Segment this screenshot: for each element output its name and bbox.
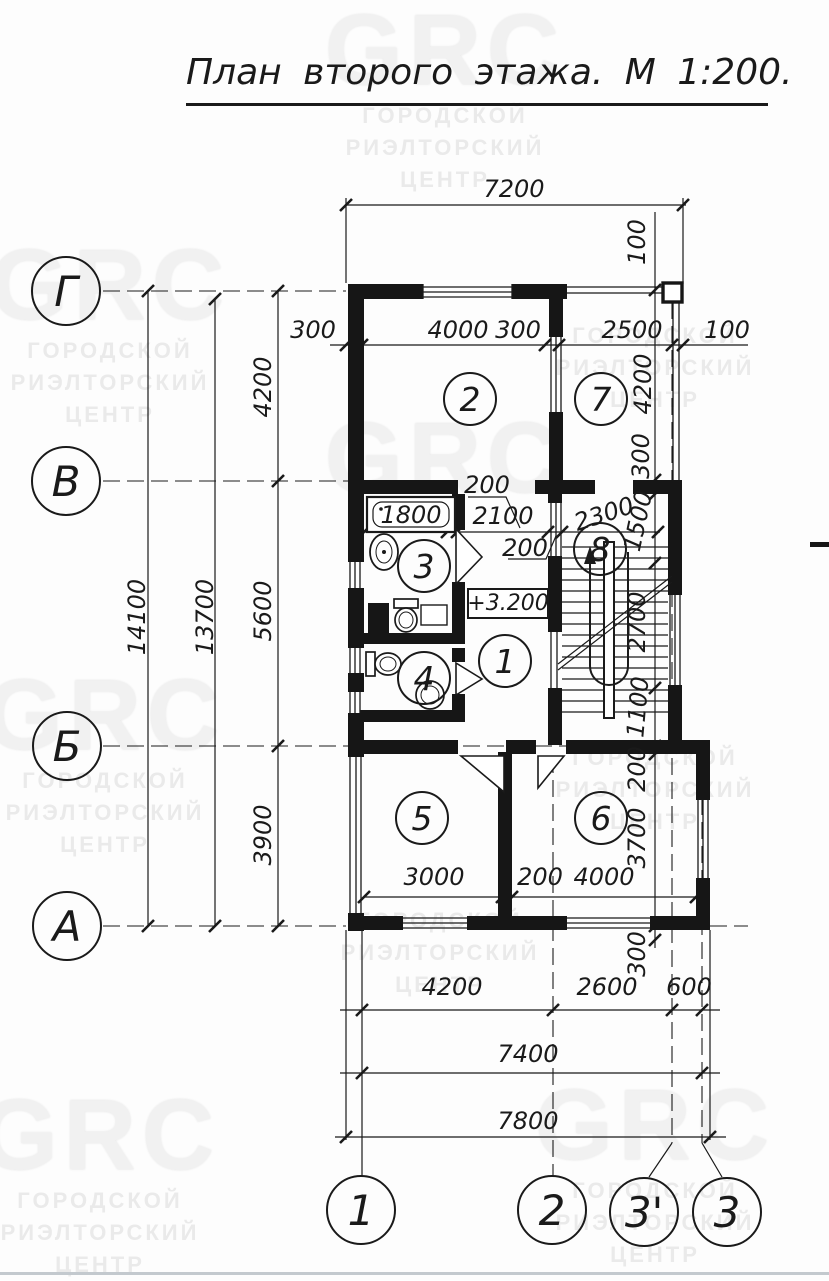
dim-label: 200 (517, 863, 563, 891)
axis-marker-А: А (32, 891, 102, 961)
dim-label: 200 (464, 471, 510, 499)
dim-label: 4200 (249, 356, 277, 417)
room-number-7: 7 (574, 372, 628, 426)
dim-label: 2100 (472, 502, 533, 530)
dim-label: 4000 (427, 316, 488, 344)
axis-marker-1: 1 (326, 1175, 396, 1245)
dim-label: 3900 (249, 804, 277, 865)
dim-label: 100 (623, 219, 651, 265)
dim-label: 2600 (576, 973, 637, 1001)
axis-marker-Б: Б (32, 711, 102, 781)
dim-label: 300 (290, 316, 336, 344)
level-mark: +3.200 (467, 588, 549, 619)
dim-label: 3000 (403, 863, 464, 891)
dim-label: 14100 (123, 579, 151, 655)
dim-label: 5600 (249, 580, 277, 641)
dim-label: 100 (704, 316, 750, 344)
dim-label: 7400 (497, 1040, 558, 1068)
dim-label: 4200 (629, 353, 657, 414)
annotation-layer: План второго этажа. М 1:200. +3.200 7200… (0, 0, 829, 1280)
axis-marker-Г: Г (31, 256, 101, 326)
axis-marker-В: В (31, 446, 101, 516)
dim-label: 600 (666, 973, 712, 1001)
room-number-1: 1 (478, 634, 532, 688)
room-number-3: 3 (397, 539, 451, 593)
dim-label: 4000 (573, 863, 634, 891)
dim-label: 2700 (623, 591, 651, 652)
dim-label: 300 (623, 931, 651, 977)
dim-label: 13700 (191, 579, 219, 655)
dim-label: 2500 (601, 316, 662, 344)
room-number-8: 8 (573, 522, 627, 576)
room-number-6: 6 (574, 791, 628, 845)
drawing-title: План второго этажа. М 1:200. (186, 52, 768, 106)
axis-marker-2: 2 (517, 1175, 587, 1245)
dim-label: 300 (495, 316, 541, 344)
dim-label: 300 (627, 433, 655, 479)
dim-label: 7200 (483, 175, 544, 203)
dim-label: 200 (502, 534, 548, 562)
dim-label: 200 (623, 746, 651, 792)
room-number-5: 5 (395, 791, 449, 845)
dim-label: 1100 (621, 675, 654, 738)
dim-label: 7800 (497, 1107, 558, 1135)
photo-edge-line (0, 1272, 829, 1275)
room-number-2: 2 (443, 372, 497, 426)
dim-label: 1800 (380, 501, 441, 529)
axis-marker-3: 3 (692, 1177, 762, 1247)
floor-plan-sheet: GRCГОРОДСКОЙРИЭЛТОРСКИЙЦЕНТРGRCГОРОДСКОЙ… (0, 0, 829, 1280)
axis-marker-3': 3' (609, 1177, 679, 1247)
dim-label: 4200 (421, 973, 482, 1001)
room-number-4: 4 (397, 651, 451, 705)
